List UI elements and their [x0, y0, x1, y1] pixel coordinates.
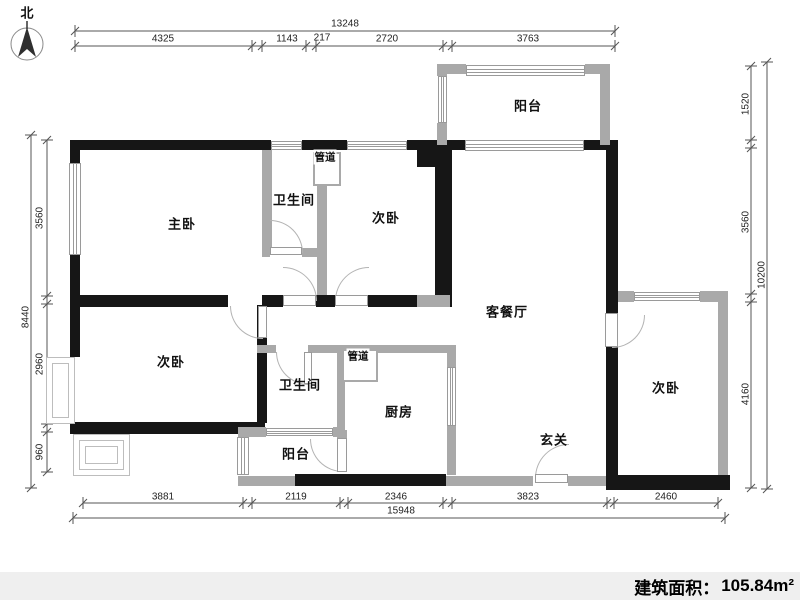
- window: [69, 163, 81, 255]
- compass-north-label: 北: [20, 3, 33, 22]
- dim-bottom-total: 15948: [387, 506, 415, 517]
- partition-wall: [437, 123, 447, 145]
- partition-wall: [238, 476, 295, 486]
- dim-left-seg: 3560: [35, 207, 46, 229]
- window: [447, 367, 456, 426]
- wall: [368, 295, 417, 307]
- floorplan-page: 北 主卧 卫生间 管道 次卧 阳台 客餐厅 次卧 卫生间 管道 厨房 阳台 玄关…: [0, 0, 800, 600]
- dim-top-seg: 217: [314, 33, 331, 44]
- door-leaf: [337, 438, 347, 472]
- wall: [606, 347, 618, 475]
- area-value: 105.84m²: [721, 576, 794, 596]
- room-label-duct-lower: 管道: [347, 349, 370, 364]
- room-label-duct-upper: 管道: [314, 150, 337, 165]
- north-compass: [11, 21, 43, 60]
- door-leaf: [335, 295, 368, 306]
- room-label-bedroom-left: 次卧: [157, 352, 185, 371]
- wall: [316, 295, 335, 307]
- north-arrow-icon: [18, 27, 36, 57]
- dim-right-seg: 1520: [741, 93, 752, 115]
- room-label-bath-lower: 卫生间: [279, 375, 321, 394]
- room-label-entry: 玄关: [540, 430, 568, 449]
- dim-bottom-seg: 3823: [517, 492, 539, 503]
- window: [237, 437, 249, 475]
- dim-bottom-seg: 2346: [385, 492, 407, 503]
- partition-wall: [238, 427, 266, 437]
- wall: [70, 307, 80, 357]
- wall: [606, 140, 618, 313]
- wall: [295, 474, 446, 486]
- dim-bottom-seg: 2460: [655, 492, 677, 503]
- room-label-bedroom-right: 次卧: [652, 378, 680, 397]
- dim-right-seg-line: [745, 62, 757, 492]
- window: [271, 141, 302, 150]
- wall: [70, 140, 271, 150]
- room-label-balcony-top: 阳台: [514, 96, 542, 115]
- partition-wall: [262, 248, 270, 257]
- partition-wall: [257, 345, 276, 353]
- partition-wall: [337, 430, 347, 438]
- dim-top-seg: 2720: [376, 34, 398, 45]
- room-label-kitchen: 厨房: [385, 402, 413, 421]
- partition-wall: [447, 345, 456, 367]
- dim-left-seg: 960: [35, 444, 46, 461]
- window: [347, 141, 407, 150]
- wall: [435, 140, 452, 307]
- partition-wall: [618, 291, 634, 302]
- room-label-master-bedroom: 主卧: [168, 214, 196, 233]
- partition-wall: [447, 426, 456, 475]
- dim-left-seg-line: [41, 136, 53, 476]
- area-footer-bar: 建筑面积：105.84m²: [0, 572, 800, 600]
- room-label-balcony-bottom: 阳台: [282, 444, 310, 463]
- window: [634, 292, 700, 301]
- partition-wall: [600, 64, 610, 145]
- dim-right-total: 10200: [757, 261, 768, 289]
- window: [438, 76, 447, 123]
- balcony-sliding-window: [465, 140, 584, 151]
- wall: [70, 295, 228, 307]
- partition-wall: [333, 427, 337, 437]
- door-leaf: [283, 295, 316, 306]
- dim-left-total: 8440: [21, 306, 32, 328]
- room-label-bedroom-top: 次卧: [372, 208, 400, 227]
- partition-wall: [308, 345, 456, 353]
- door-leaf: [270, 247, 302, 255]
- partition-wall: [718, 291, 728, 475]
- room-label-living-dining: 客餐厅: [486, 302, 528, 321]
- window: [466, 65, 585, 76]
- dim-left-seg: 2960: [35, 353, 46, 375]
- wall: [606, 475, 730, 490]
- partition-wall: [437, 64, 447, 76]
- dim-top-seg: 1143: [276, 34, 298, 45]
- entry-door-leaf: [535, 474, 568, 483]
- window: [266, 428, 333, 436]
- dim-right-seg: 4160: [741, 383, 752, 405]
- dim-top-seg: 4325: [152, 34, 174, 45]
- dim-top-total: 13248: [331, 19, 359, 30]
- partition-wall: [568, 476, 606, 486]
- bay-window: [85, 446, 118, 464]
- partition-wall: [446, 476, 533, 486]
- partition-wall: [417, 295, 450, 307]
- area-label: 建筑面积：: [634, 574, 719, 599]
- wall: [70, 140, 80, 163]
- dim-bottom-seg: 2119: [285, 492, 307, 503]
- dim-right-seg: 3560: [741, 211, 752, 233]
- dim-top-seg: 3763: [517, 34, 539, 45]
- room-label-bath-upper: 卫生间: [273, 190, 315, 209]
- door-leaf: [605, 313, 618, 347]
- wall: [70, 422, 265, 434]
- dim-bottom-seg: 3881: [152, 492, 174, 503]
- bay-window: [52, 363, 69, 418]
- wall: [302, 140, 347, 150]
- door-leaf: [258, 306, 267, 338]
